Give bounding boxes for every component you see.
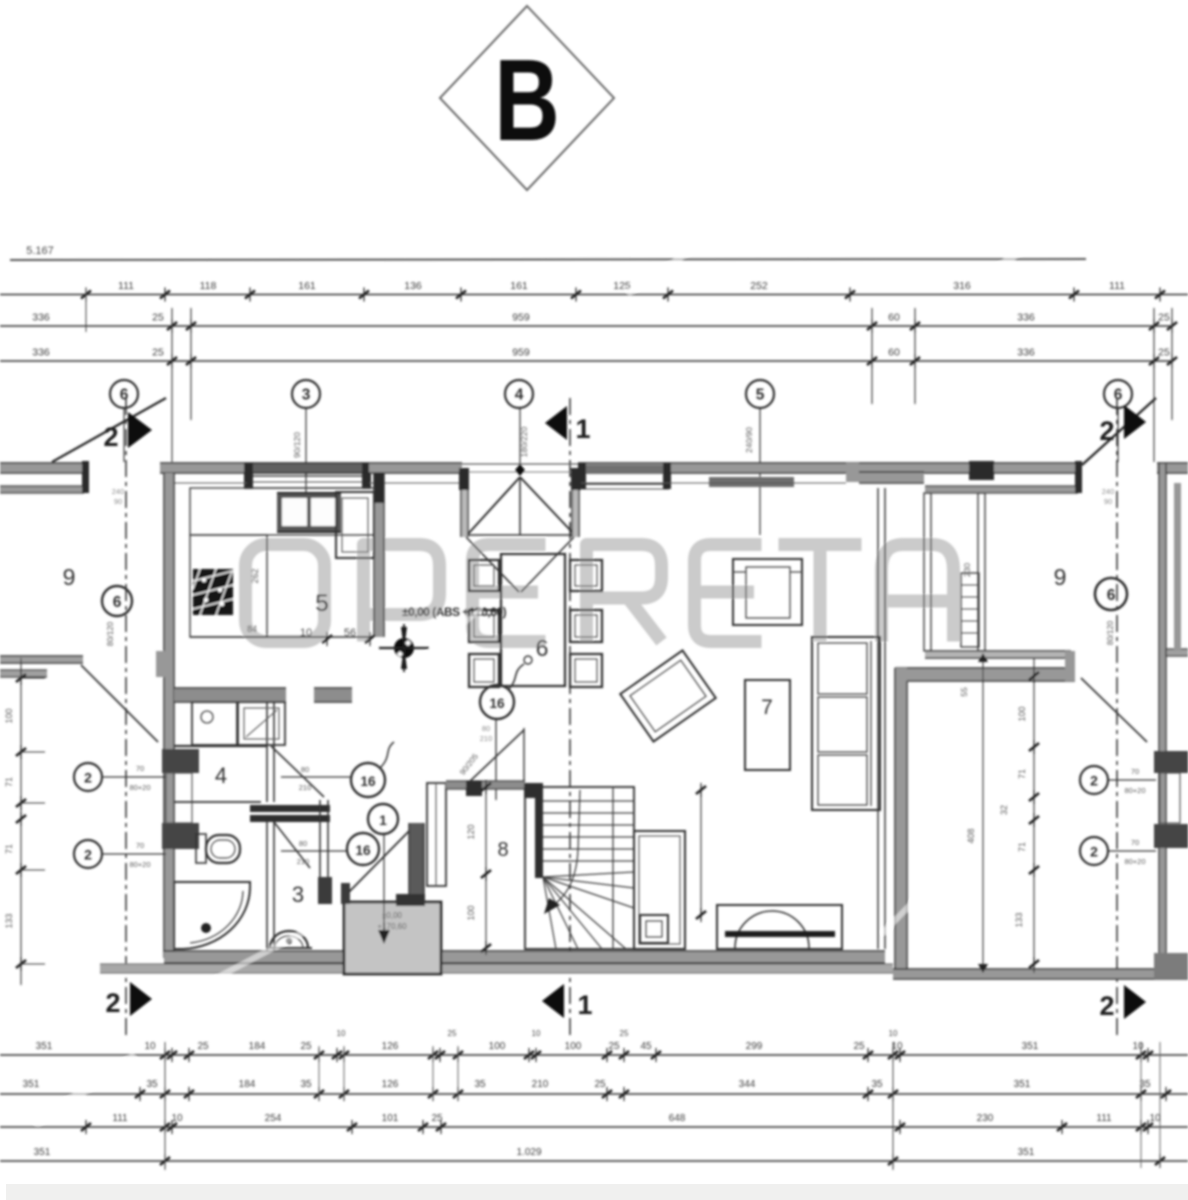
svg-text:80: 80 — [301, 765, 309, 774]
svg-text:16: 16 — [355, 843, 371, 858]
svg-text:16: 16 — [360, 774, 376, 789]
svg-text:70: 70 — [136, 841, 144, 850]
svg-text:90: 90 — [114, 497, 122, 506]
svg-text:71: 71 — [1017, 842, 1027, 852]
svg-text:3: 3 — [302, 387, 311, 404]
svg-text:10: 10 — [1132, 1041, 1144, 1052]
svg-text:6: 6 — [1114, 387, 1123, 404]
svg-text:2: 2 — [1099, 991, 1114, 1021]
svg-text:180/220: 180/220 — [519, 426, 529, 457]
svg-text:408: 408 — [966, 828, 976, 843]
svg-text:25: 25 — [620, 1029, 629, 1038]
svg-text:35: 35 — [300, 1079, 312, 1090]
svg-text:80: 80 — [482, 724, 490, 733]
svg-text:2: 2 — [84, 847, 92, 863]
svg-text:8: 8 — [497, 839, 508, 861]
svg-text:+170,60: +170,60 — [377, 922, 407, 931]
svg-text:5.167: 5.167 — [26, 245, 54, 257]
svg-text:336: 336 — [1017, 312, 1035, 324]
svg-text:10: 10 — [300, 627, 312, 639]
svg-text:90: 90 — [1104, 497, 1112, 506]
svg-text:136: 136 — [404, 280, 422, 292]
svg-text:210: 210 — [297, 857, 310, 866]
svg-text:101: 101 — [382, 1113, 399, 1124]
svg-text:111: 111 — [1109, 280, 1125, 292]
svg-text:100: 100 — [466, 905, 476, 920]
svg-text:70: 70 — [1131, 838, 1139, 847]
svg-text:111: 111 — [112, 1113, 128, 1124]
svg-text:210: 210 — [480, 734, 493, 743]
svg-text:184: 184 — [239, 1079, 256, 1090]
svg-text:336: 336 — [32, 347, 50, 359]
svg-text:1: 1 — [575, 414, 590, 444]
svg-text:±0,00: ±0,00 — [382, 911, 403, 920]
svg-text:161: 161 — [510, 280, 528, 292]
svg-text:25: 25 — [853, 1041, 865, 1052]
svg-text:100: 100 — [489, 1041, 506, 1052]
svg-text:351: 351 — [1014, 1079, 1031, 1090]
svg-text:35: 35 — [474, 1079, 486, 1090]
svg-text:3: 3 — [292, 882, 304, 907]
svg-text:126: 126 — [382, 1079, 399, 1090]
svg-text:240: 240 — [112, 487, 125, 496]
svg-text:6: 6 — [120, 387, 129, 404]
svg-text:336: 336 — [32, 312, 50, 324]
svg-text:5: 5 — [315, 590, 328, 617]
svg-text:6: 6 — [536, 635, 549, 661]
svg-text:648: 648 — [669, 1113, 686, 1124]
svg-text:25: 25 — [1158, 312, 1170, 324]
svg-text:10: 10 — [889, 1029, 898, 1038]
svg-text:6: 6 — [113, 594, 122, 611]
svg-text:111: 111 — [118, 280, 134, 292]
svg-text:1: 1 — [577, 990, 592, 1020]
svg-text:4: 4 — [215, 763, 227, 788]
svg-text:230: 230 — [977, 1113, 994, 1124]
svg-text:2: 2 — [1090, 844, 1098, 860]
svg-text:84: 84 — [247, 624, 257, 634]
svg-text:55: 55 — [959, 687, 969, 697]
svg-text:±0,00 (ABS +170,60): ±0,00 (ABS +170,60) — [402, 605, 507, 619]
svg-text:344: 344 — [739, 1079, 756, 1090]
svg-text:70: 70 — [136, 764, 144, 773]
svg-text:118: 118 — [200, 280, 217, 292]
svg-text:2: 2 — [1099, 416, 1114, 446]
svg-text:80+20: 80+20 — [129, 860, 150, 869]
svg-text:1: 1 — [379, 813, 387, 828]
svg-text:10: 10 — [337, 1029, 346, 1038]
svg-text:100: 100 — [4, 708, 14, 723]
svg-text:351: 351 — [36, 1041, 53, 1052]
svg-text:71: 71 — [1017, 769, 1027, 779]
svg-text:80/120: 80/120 — [106, 621, 115, 646]
svg-text:210: 210 — [532, 1079, 549, 1090]
svg-text:2: 2 — [103, 422, 118, 452]
svg-text:351: 351 — [1022, 1041, 1039, 1052]
svg-text:60: 60 — [888, 312, 900, 324]
svg-text:126: 126 — [382, 1041, 399, 1052]
svg-text:45: 45 — [640, 1041, 652, 1052]
svg-text:25: 25 — [1158, 347, 1170, 359]
svg-text:80+20: 80+20 — [1124, 786, 1145, 795]
svg-text:25: 25 — [594, 1079, 606, 1090]
svg-text:351: 351 — [1018, 1147, 1035, 1158]
svg-text:2: 2 — [105, 988, 120, 1018]
svg-text:230: 230 — [962, 563, 972, 577]
svg-text:161: 161 — [298, 280, 316, 292]
svg-text:10: 10 — [144, 1041, 156, 1052]
svg-text:71: 71 — [4, 777, 14, 787]
svg-text:90/120: 90/120 — [292, 432, 302, 458]
svg-text:133: 133 — [4, 913, 14, 928]
svg-text:2: 2 — [1090, 773, 1098, 789]
svg-text:25: 25 — [300, 1041, 312, 1052]
svg-text:56: 56 — [344, 627, 356, 639]
svg-text:351: 351 — [34, 1147, 51, 1158]
svg-text:25: 25 — [448, 1029, 457, 1038]
svg-text:7: 7 — [761, 696, 773, 719]
svg-text:B: B — [494, 36, 559, 165]
svg-text:240: 240 — [1102, 487, 1115, 496]
svg-text:2: 2 — [84, 770, 92, 786]
svg-text:240/90: 240/90 — [744, 427, 754, 453]
svg-text:252: 252 — [750, 280, 768, 292]
svg-text:262: 262 — [250, 568, 260, 583]
svg-text:5: 5 — [756, 387, 765, 404]
svg-text:71: 71 — [4, 844, 14, 854]
svg-text:111: 111 — [1096, 1113, 1112, 1124]
svg-text:9: 9 — [1054, 564, 1067, 590]
svg-text:25: 25 — [197, 1041, 209, 1052]
svg-text:959: 959 — [512, 312, 530, 324]
svg-text:254: 254 — [265, 1113, 282, 1124]
svg-text:100: 100 — [565, 1041, 582, 1052]
svg-text:6: 6 — [1107, 587, 1116, 604]
svg-text:25: 25 — [152, 347, 164, 359]
svg-text:210: 210 — [299, 783, 312, 792]
svg-text:80/120: 80/120 — [1106, 620, 1115, 645]
svg-text:120: 120 — [466, 824, 476, 839]
svg-text:16: 16 — [489, 696, 505, 711]
svg-text:35: 35 — [871, 1079, 883, 1090]
svg-text:35: 35 — [146, 1079, 158, 1090]
svg-text:184: 184 — [249, 1041, 266, 1052]
svg-text:60: 60 — [888, 347, 900, 359]
svg-text:10: 10 — [532, 1029, 541, 1038]
svg-text:9: 9 — [63, 564, 76, 590]
svg-text:80+20: 80+20 — [129, 783, 150, 792]
svg-text:100: 100 — [1017, 706, 1027, 721]
svg-text:80+20: 80+20 — [1124, 857, 1145, 866]
svg-text:336: 336 — [1017, 347, 1035, 359]
svg-text:32: 32 — [999, 805, 1009, 815]
svg-text:10: 10 — [1149, 1113, 1161, 1124]
svg-text:351: 351 — [23, 1079, 40, 1090]
svg-text:1.029: 1.029 — [516, 1147, 541, 1158]
svg-text:299: 299 — [746, 1041, 763, 1052]
svg-text:80: 80 — [299, 839, 307, 848]
svg-text:70: 70 — [1131, 767, 1139, 776]
svg-text:25: 25 — [152, 312, 164, 324]
svg-text:25: 25 — [431, 1113, 443, 1124]
svg-text:316: 316 — [953, 280, 971, 292]
svg-text:4: 4 — [515, 387, 524, 404]
svg-text:25: 25 — [608, 1041, 620, 1052]
svg-text:10: 10 — [171, 1113, 183, 1124]
svg-text:133: 133 — [1014, 912, 1024, 927]
svg-text:959: 959 — [512, 347, 530, 359]
